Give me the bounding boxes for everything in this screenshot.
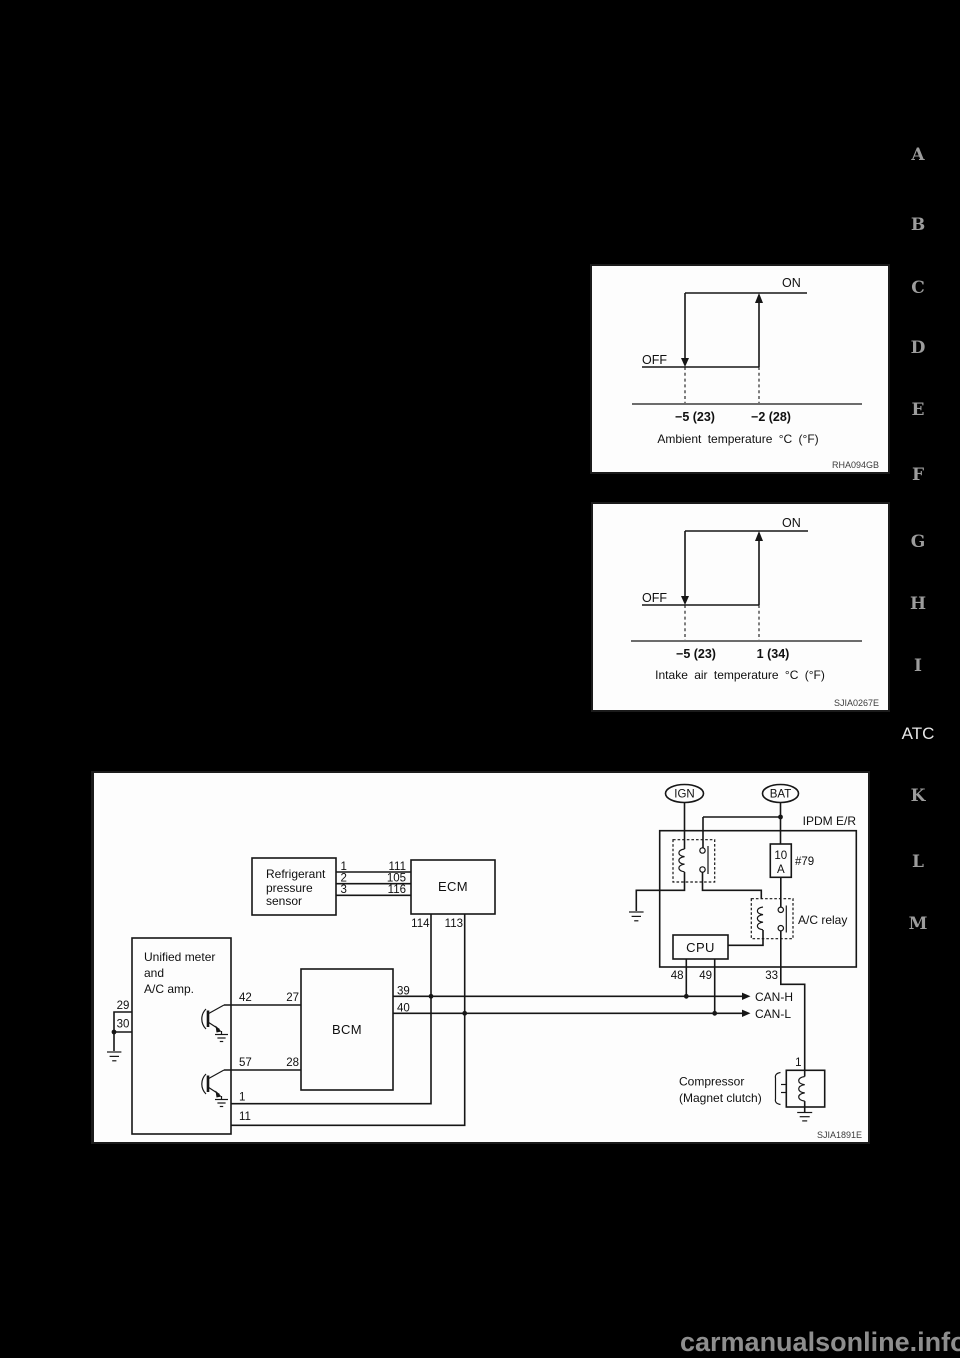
tick-label-2: −2 (28) [751, 410, 791, 424]
unified-pin57-label: 57 [239, 1057, 252, 1069]
down-arrowhead [681, 358, 689, 367]
section-marker-a: A [911, 145, 924, 165]
ecm-pin116-label: 116 [388, 884, 406, 896]
can-h-label: CAN-H [755, 990, 793, 1004]
cpu-pin49-label: 49 [699, 970, 712, 982]
bat-junction-dot [778, 815, 783, 820]
cpu-pin48-label: 48 [671, 970, 684, 982]
ecm113-canl-junction-dot [462, 1011, 467, 1016]
sensor-label-line3: sensor [266, 894, 302, 908]
bcm-pin28-label: 28 [286, 1057, 299, 1069]
ambient-temp-hysteresis-chart: ON OFF −5 (23) −2 (28) Ambient temperatu… [590, 264, 890, 474]
figure-code: SJIA0267E [834, 698, 879, 708]
tick-label-1: −5 (23) [675, 410, 715, 424]
section-marker-atc-active: ATC [902, 724, 935, 744]
section-marker-l: L [912, 852, 924, 872]
ground-symbol-compressor [797, 1113, 812, 1121]
tick-label-2: 1 (34) [757, 647, 790, 661]
section-marker-k: K [911, 786, 926, 806]
ground-symbol-ipdm [629, 912, 644, 921]
ecm-pin111-label: 111 [389, 861, 406, 873]
unified-label-line1: Unified meter [144, 950, 215, 964]
section-marker-d: D [911, 338, 926, 358]
ecm-pin114-label: 114 [411, 918, 430, 930]
section-marker-b: B [911, 215, 925, 235]
x-axis-caption: Ambient temperature °C (°F) [657, 432, 818, 446]
section-marker-h: H [910, 594, 926, 614]
sensor-pin2-label: 2 [341, 873, 347, 885]
can-h-arrowhead [742, 993, 751, 1000]
manual-page: A B C D E F G H I ATC K L M ON OFF −5 (2… [0, 0, 960, 1358]
cpu49-canl-junction-dot [712, 1011, 717, 1016]
can-l-label: CAN-L [755, 1007, 791, 1021]
unified-label-line3: A/C amp. [144, 982, 194, 996]
unified-pin29-label: 29 [117, 1000, 130, 1012]
sensor-label-line2: pressure [266, 881, 313, 895]
watermark-text: carmanualsonline.info [680, 1327, 960, 1358]
unified-pin1-label: 1 [239, 1092, 245, 1104]
cpu48-canh-junction-dot [684, 994, 689, 999]
sensor-pin3-label: 3 [341, 884, 347, 896]
unified-pin30-label: 30 [117, 1019, 130, 1031]
bcm-pin27-label: 27 [286, 992, 299, 1004]
fuse-rating-line2: A [777, 864, 785, 876]
ipdm-er-label: IPDM E/R [803, 814, 857, 828]
compressor-pin1-label: 1 [795, 1057, 801, 1069]
compressor-label-line2: (Magnet clutch) [679, 1091, 762, 1105]
section-marker-m: M [909, 914, 928, 934]
compressor-label-line1: Compressor [679, 1075, 744, 1089]
bat-label: BAT [770, 789, 792, 801]
bcm-label: BCM [332, 1022, 362, 1037]
tick-label-1: −5 (23) [676, 647, 716, 661]
figure-code: SJIA1891E [817, 1130, 862, 1140]
section-marker-i: I [914, 656, 922, 676]
off-label: OFF [642, 591, 667, 605]
can-l-arrowhead [742, 1010, 751, 1017]
fuse-rating-line1: 10 [774, 850, 787, 862]
figure-code: RHA094GB [832, 460, 879, 470]
section-marker-g: G [911, 532, 926, 552]
ground-symbol-unified [107, 1052, 121, 1061]
unified-pin42-label: 42 [239, 992, 252, 1004]
section-marker-c: C [911, 278, 925, 298]
bcm-pin39-label: 39 [397, 986, 410, 998]
cpu-label: CPU [686, 940, 715, 955]
section-marker-e: E [912, 400, 925, 420]
sensor-label-line1: Refrigerant [266, 867, 326, 881]
can-bus-lines [393, 993, 751, 1017]
fuse-number-label: #79 [795, 856, 814, 868]
ac-wiring-diagram: IGN BAT IPDM E/R 10 A #79 A/C relay CPU … [91, 771, 870, 1144]
intake-air-temp-hysteresis-chart: ON OFF −5 (23) 1 (34) Intake air tempera… [591, 502, 890, 712]
x-axis-caption: Intake air temperature °C (°F) [655, 668, 825, 682]
ecm-label: ECM [438, 879, 468, 894]
ecm-pin105-label: 105 [387, 873, 406, 885]
ecm-pin113-label: 113 [445, 918, 463, 930]
up-arrowhead [755, 531, 763, 541]
up-arrowhead [755, 293, 763, 303]
ipdm-pin33-label: 33 [765, 970, 778, 982]
on-label: ON [782, 516, 801, 530]
unified-label-line2: and [144, 966, 164, 980]
bcm-pin40-label: 40 [397, 1003, 410, 1015]
ac-relay-label: A/C relay [798, 913, 847, 927]
ign-label: IGN [674, 789, 694, 801]
off-label: OFF [642, 353, 667, 367]
on-label: ON [782, 276, 801, 290]
clutch-pulley-symbol [775, 1073, 780, 1105]
ecm114-canh-junction-dot [429, 994, 434, 999]
sensor-pin1-label: 1 [341, 861, 347, 873]
section-marker-f: F [912, 465, 924, 485]
down-arrowhead [681, 596, 689, 605]
unified-pin11-label: 11 [239, 1111, 251, 1123]
